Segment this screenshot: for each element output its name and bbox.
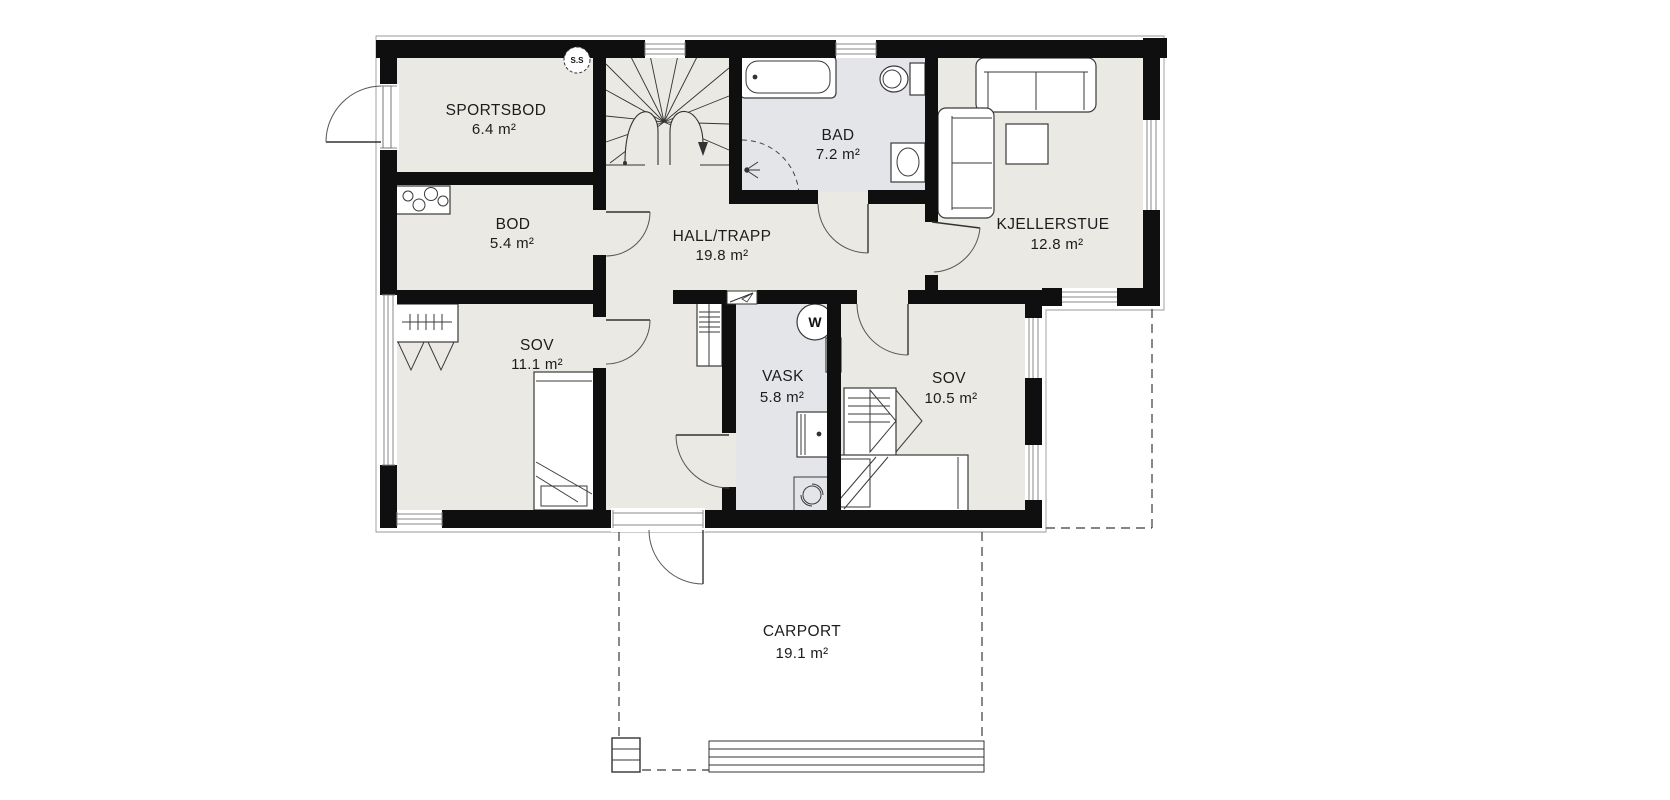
vent-symbol (727, 291, 757, 304)
toilet-tank (910, 63, 925, 95)
window (1143, 120, 1160, 210)
washing-machine-laundry (797, 412, 830, 457)
exterior-door-left (326, 84, 399, 150)
floor-plan-page: W (0, 0, 1670, 800)
corner-post (1143, 38, 1167, 58)
room-area: 19.8 m² (696, 247, 749, 264)
room-area: 7.2 m² (816, 146, 860, 163)
room-area: 19.1 m² (776, 645, 829, 662)
room-name: VASK (762, 368, 804, 385)
room-area: 10.5 m² (925, 390, 978, 407)
room-area: 5.4 m² (490, 235, 534, 252)
window (1025, 318, 1042, 378)
window (645, 40, 685, 58)
window (1062, 288, 1117, 306)
storage-counter (396, 186, 450, 214)
fuse-box-label: S.S (571, 56, 585, 65)
room-area: 11.1 m² (511, 356, 563, 373)
window (1025, 445, 1042, 500)
room-area: 12.8 m² (1031, 236, 1084, 253)
window (397, 510, 442, 528)
room-name: SOV (932, 370, 966, 387)
room-area: 5.8 m² (760, 389, 804, 406)
fuse-box-symbol: S.S (564, 47, 590, 73)
room-name: BAD (821, 127, 854, 144)
room-name: SPORTSBOD (446, 102, 547, 119)
retaining-wall (709, 741, 984, 772)
room-carport: CARPORT 19.1 m² (763, 623, 841, 662)
entrance-door (611, 508, 705, 584)
hall-cabinet (697, 303, 722, 366)
water-heater-label: W (808, 314, 822, 330)
room-name: SOV (520, 337, 554, 354)
bed-bedroom1 (534, 372, 594, 510)
room-name: KJELLERSTUE (997, 216, 1110, 233)
window (380, 295, 397, 465)
room-name: HALL/TRAPP (673, 228, 772, 245)
room-area: 6.4 m² (472, 121, 516, 138)
coffee-table (1006, 124, 1048, 164)
bathtub-drain (753, 75, 758, 80)
carport-post (612, 738, 640, 772)
window (836, 40, 876, 58)
floor-plan: W (0, 0, 1670, 800)
bed-bedroom2 (838, 455, 968, 511)
room-name: CARPORT (763, 623, 841, 640)
wardrobe-bedroom1 (396, 304, 458, 342)
room-name: BOD (496, 216, 531, 233)
stair-newel-post (623, 161, 627, 165)
